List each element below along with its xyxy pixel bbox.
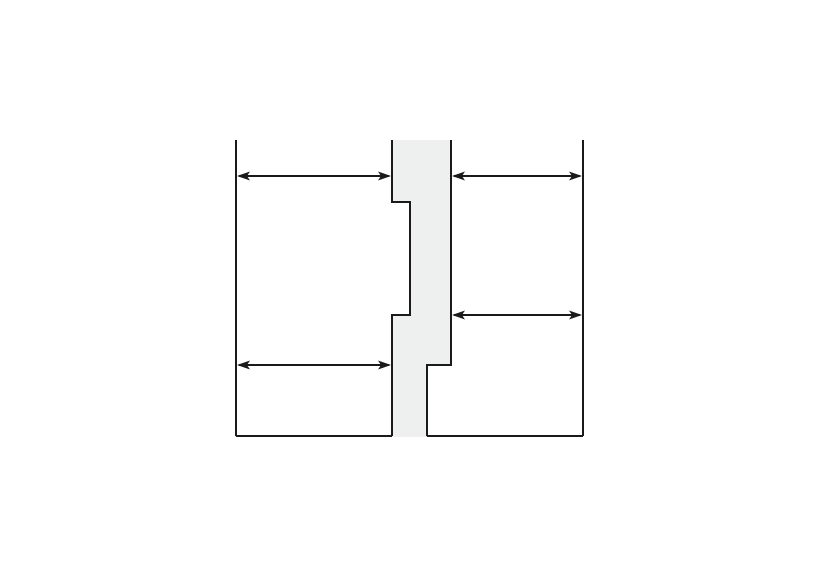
joint-gap-fill bbox=[392, 140, 451, 437]
joint-diagram-svg bbox=[0, 0, 820, 580]
diagram-canvas bbox=[0, 0, 820, 580]
